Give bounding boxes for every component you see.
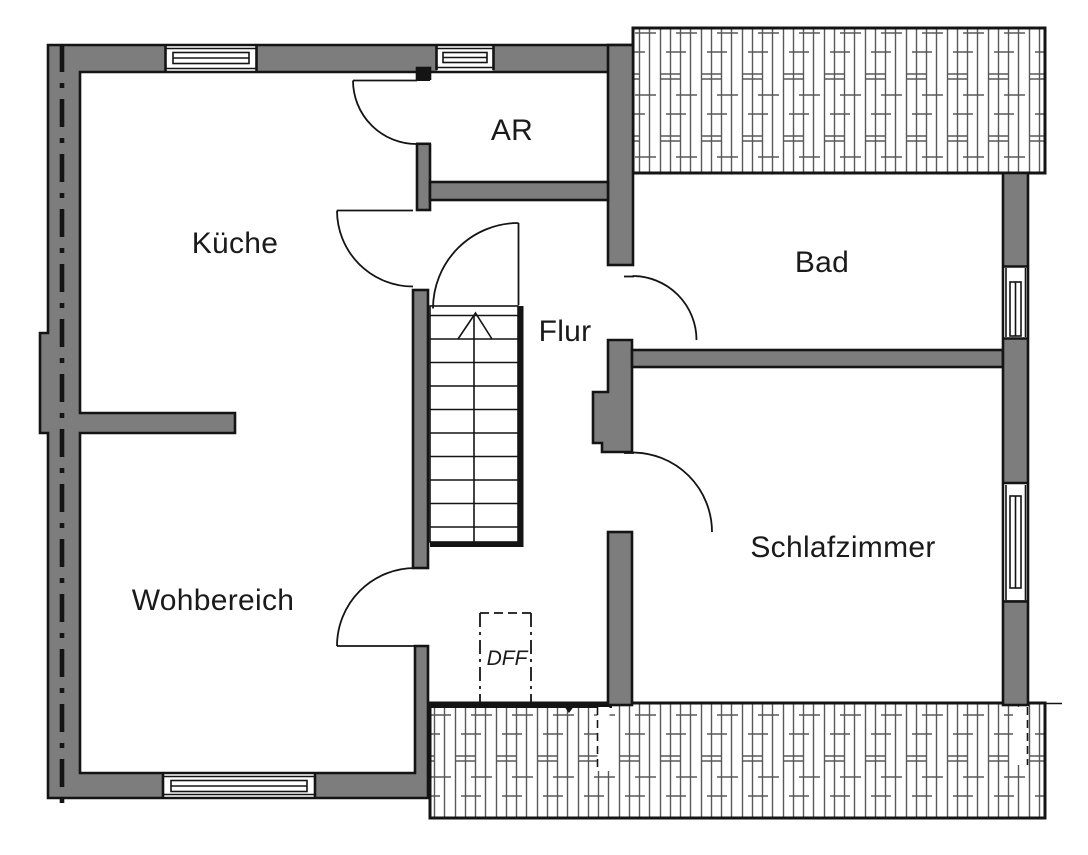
room-label-kueche: Küche	[192, 227, 279, 261]
room-label-bad: Bad	[795, 246, 849, 280]
stairs-up-arrow	[458, 313, 492, 339]
roof-window-label: DFF	[487, 647, 528, 671]
door-ar	[353, 81, 417, 145]
window-ar-north	[437, 44, 494, 71]
room-label-schlafzimmer: Schlafzimmer	[750, 531, 935, 565]
chimney	[593, 340, 632, 452]
wall-schlafzimmer-north	[632, 350, 1003, 367]
wall-schlafzimmer-west	[608, 532, 632, 705]
door-wohnbereich	[337, 568, 415, 646]
room-label-wohnbereich: Wohbereich	[132, 584, 295, 618]
room-label-flur: Flur	[539, 315, 592, 349]
wall-ar-south	[430, 182, 608, 200]
window-schlafzimmer-east	[1002, 483, 1029, 602]
stairs	[430, 306, 524, 547]
door-kueche	[337, 211, 413, 287]
window-bad-east	[1002, 267, 1029, 339]
outer-wall	[40, 45, 633, 798]
door-schlafzimmer	[624, 453, 712, 533]
room-label-ar: AR	[491, 114, 533, 148]
floor-plan: Küche AR Bad Flur Wohbereich Schlafzimme…	[0, 0, 1088, 855]
window-kueche-north	[166, 44, 257, 73]
roof-hatch-top	[633, 28, 1045, 173]
wall-east	[1003, 173, 1028, 705]
door-bad	[624, 276, 697, 340]
door-jamb-ar	[417, 68, 430, 81]
door-stairs	[433, 223, 519, 309]
window-wohnbereich-south	[163, 772, 315, 799]
roof-hatch-bottom	[430, 702, 1062, 818]
wall-bad-west	[608, 45, 633, 265]
wall-stair-west	[413, 290, 428, 568]
floor-plan-drawing	[0, 0, 1088, 855]
